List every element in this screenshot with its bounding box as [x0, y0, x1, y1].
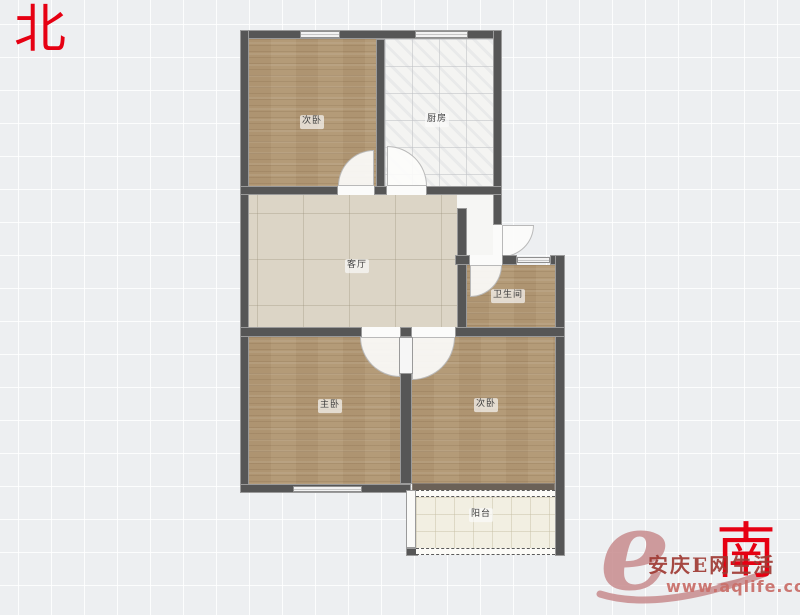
door-opening-bedroom-bottom-right	[412, 327, 455, 337]
wall-bathroom-left	[457, 208, 467, 332]
balcony-window-line-top	[416, 490, 555, 497]
watermark-site-url: www.aqlife.com	[666, 577, 800, 596]
wall-kitchen-right	[493, 30, 502, 225]
wall-mid-lower-stub	[400, 327, 412, 337]
door-opening-bedroom-top-left	[338, 186, 374, 195]
window-bathroom	[517, 257, 550, 263]
room-label-bedroom-top-left: 次卧	[300, 115, 324, 129]
wall-bathroom-top-b	[502, 255, 517, 265]
window-bedroom-top-left	[300, 31, 340, 38]
watermark-site-name: 安庆E网生活	[648, 549, 775, 578]
door-opening-entry	[493, 225, 502, 258]
wall-mid-lower-c	[455, 327, 565, 337]
room-balcony	[416, 497, 555, 548]
wall-bedroom-kitchen-divider	[376, 39, 385, 195]
wall-bathroom-top-a	[455, 255, 470, 265]
door-opening-bathroom	[470, 255, 502, 265]
door-panel-bottom-bedrooms	[399, 337, 413, 374]
door-arc-entry	[502, 225, 534, 257]
door-opening-kitchen	[387, 186, 426, 195]
window-kitchen	[415, 31, 468, 38]
wall-left	[240, 30, 249, 493]
room-label-bedroom-bottom-right: 次卧	[474, 398, 498, 412]
room-label-bathroom: 卫生间	[491, 289, 525, 303]
room-label-balcony: 阳台	[469, 508, 493, 522]
wall-mid-upper-b	[374, 186, 387, 195]
wall-mid-lower-a	[240, 327, 362, 337]
compass-north-label: 北	[14, 4, 66, 56]
door-opening-master-bedroom	[362, 327, 400, 337]
floor-plan: 次卧 厨房 客厅 卫生间 主卧 次卧 阳台	[0, 0, 800, 600]
wall-right	[555, 255, 565, 556]
wall-mid-upper-c	[426, 186, 502, 195]
window-master-bedroom	[293, 486, 362, 492]
balcony-left-frame	[406, 490, 416, 548]
room-label-kitchen: 厨房	[425, 113, 449, 127]
room-label-living-room: 客厅	[345, 259, 369, 273]
wall-mid-upper-a	[240, 186, 338, 195]
room-label-master-bedroom: 主卧	[318, 399, 342, 413]
balcony-window-line-bottom	[416, 548, 555, 555]
